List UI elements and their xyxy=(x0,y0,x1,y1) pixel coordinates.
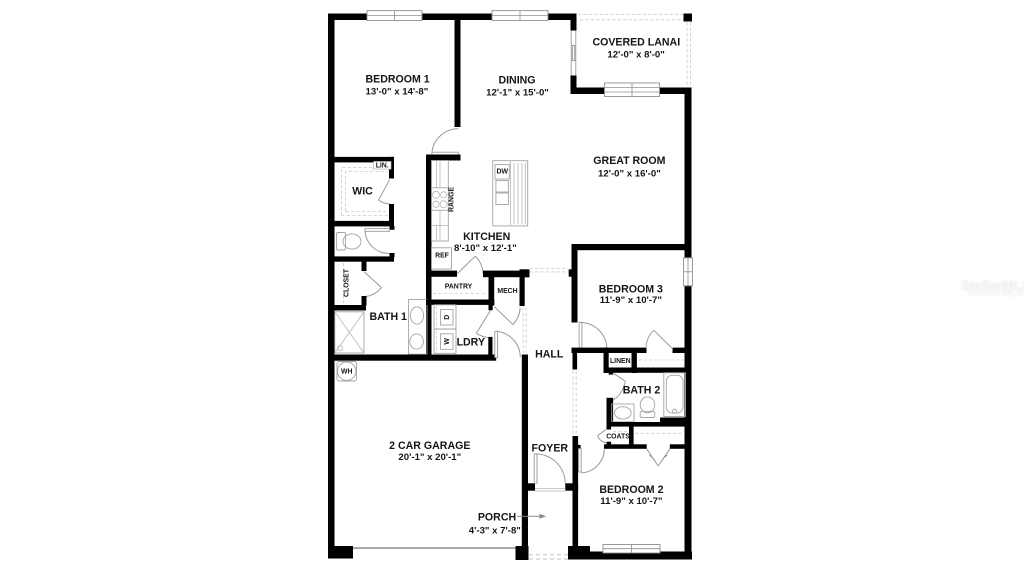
svg-text:LINEN: LINEN xyxy=(610,358,631,365)
svg-text:12'-0" x 16'-0": 12'-0" x 16'-0" xyxy=(598,168,661,179)
svg-text:DINING: DINING xyxy=(498,75,535,87)
svg-text:LDRY: LDRY xyxy=(457,336,485,348)
svg-text:StellarMLS: StellarMLS xyxy=(968,287,1024,299)
svg-text:BEDROOM 1: BEDROOM 1 xyxy=(366,74,430,86)
svg-text:11'-9" x 10'-7": 11'-9" x 10'-7" xyxy=(600,295,662,306)
svg-text:PANTRY: PANTRY xyxy=(445,283,473,290)
svg-text:12'-1" x 15'-0": 12'-1" x 15'-0" xyxy=(486,87,549,98)
svg-text:BATH 2: BATH 2 xyxy=(623,385,661,397)
svg-text:11'-9" x 10'-7": 11'-9" x 10'-7" xyxy=(600,496,662,507)
svg-text:2 CAR GARAGE: 2 CAR GARAGE xyxy=(389,440,470,452)
svg-text:REF: REF xyxy=(435,252,449,259)
svg-text:4'-3" x 7'-8": 4'-3" x 7'-8" xyxy=(469,525,521,536)
svg-text:HALL: HALL xyxy=(535,349,564,361)
svg-text:12'-0" x 8'-0": 12'-0" x 8'-0" xyxy=(607,49,664,60)
svg-text:COVERED LANAI: COVERED LANAI xyxy=(592,36,680,48)
svg-text:COATS: COATS xyxy=(606,434,630,441)
svg-text:KITCHEN: KITCHEN xyxy=(463,231,510,243)
svg-text:DW: DW xyxy=(497,169,509,176)
svg-text:BATH 1: BATH 1 xyxy=(369,311,407,323)
svg-text:RANGE: RANGE xyxy=(449,187,456,212)
svg-text:CLOSET: CLOSET xyxy=(344,268,351,297)
svg-text:BEDROOM 3: BEDROOM 3 xyxy=(599,284,663,296)
svg-text:WH: WH xyxy=(341,369,353,376)
svg-text:WIC: WIC xyxy=(352,186,373,198)
svg-text:FOYER: FOYER xyxy=(532,442,569,454)
svg-text:20'-1" x 20'-1": 20'-1" x 20'-1" xyxy=(398,452,461,463)
svg-text:GREAT ROOM: GREAT ROOM xyxy=(593,155,665,167)
svg-text:LIN.: LIN. xyxy=(376,162,389,169)
svg-text:BEDROOM 2: BEDROOM 2 xyxy=(599,484,663,496)
svg-text:13'-0" x 14'-8": 13'-0" x 14'-8" xyxy=(366,87,429,98)
svg-text:MECH: MECH xyxy=(497,288,517,295)
svg-text:W: W xyxy=(444,338,451,345)
svg-text:D: D xyxy=(444,315,451,320)
svg-text:PORCH: PORCH xyxy=(478,511,516,523)
svg-text:8'-10" x 12'-1": 8'-10" x 12'-1" xyxy=(454,243,517,254)
